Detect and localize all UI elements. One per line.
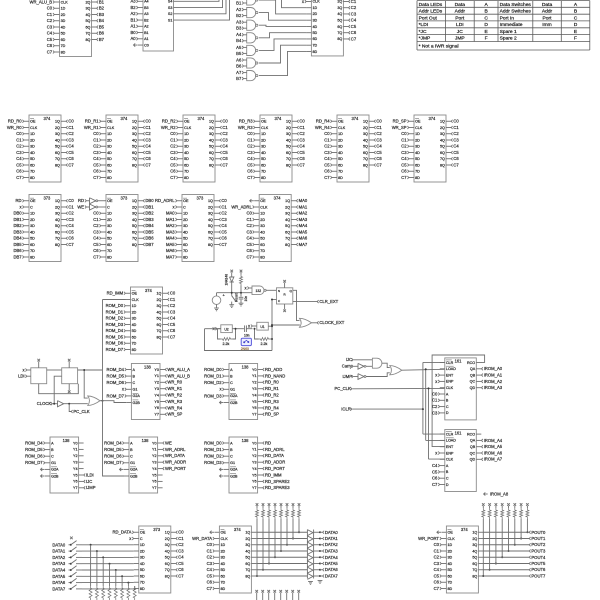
svg-text:ROM_D3: ROM_D3 — [106, 322, 124, 327]
svg-text:373: 373 — [196, 196, 204, 201]
svg-text:4D: 4D — [448, 562, 453, 566]
svg-text:8D: 8D — [183, 255, 188, 259]
svg-text:ROM_D4: ROM_D4 — [25, 440, 43, 445]
svg-text:DATA5: DATA5 — [52, 574, 66, 579]
svg-text:3D: 3D — [140, 556, 145, 560]
svg-text:LOAD: LOAD — [446, 439, 456, 443]
svg-text:C2: C2 — [351, 5, 357, 10]
svg-text:1D: 1D — [30, 132, 35, 136]
svg-text:C2: C2 — [401, 144, 407, 149]
svg-text:C5: C5 — [221, 229, 227, 234]
svg-text:C6: C6 — [47, 43, 53, 48]
svg-text:Y4: Y4 — [154, 393, 159, 397]
svg-text:C3: C3 — [47, 24, 53, 29]
svg-text:G1: G1 — [133, 388, 138, 392]
svg-text:C3: C3 — [299, 137, 305, 142]
svg-text:Y7: Y7 — [154, 413, 159, 417]
svg-text:7Q: 7Q — [55, 157, 60, 161]
svg-text:374: 374 — [428, 116, 436, 121]
svg-text:C1: C1 — [170, 137, 176, 142]
svg-text:C6: C6 — [324, 169, 330, 174]
svg-text:D: D — [484, 22, 488, 28]
svg-text:C5: C5 — [68, 229, 74, 234]
svg-text:G2B: G2B — [230, 401, 238, 405]
svg-text:OE: OE — [261, 120, 267, 124]
svg-text:DATA2: DATA2 — [325, 542, 339, 547]
svg-text:OE: OE — [221, 531, 227, 535]
svg-text:5D: 5D — [140, 568, 145, 572]
svg-text:WR_R2: WR_R2 — [167, 393, 182, 398]
svg-text:3Q: 3Q — [55, 212, 60, 216]
svg-text:CLK: CLK — [448, 537, 456, 541]
svg-text:C6: C6 — [432, 476, 438, 481]
svg-text:ROM_D0: ROM_D0 — [106, 303, 124, 308]
svg-text:8D: 8D — [415, 176, 420, 180]
svg-text:DB1: DB1 — [145, 204, 154, 209]
svg-text:3Q: 3Q — [440, 132, 445, 136]
svg-text:2D: 2D — [107, 138, 112, 142]
svg-text:IROM_A5: IROM_A5 — [484, 444, 503, 449]
svg-text:MA4: MA4 — [166, 236, 175, 241]
svg-text:B7: B7 — [99, 37, 105, 42]
svg-text:8D: 8D — [448, 587, 453, 591]
svg-text:G2B: G2B — [130, 474, 138, 478]
svg-text:373: 373 — [120, 196, 128, 201]
svg-text:C3: C3 — [434, 561, 440, 566]
svg-text:8Q: 8Q — [285, 243, 290, 247]
svg-text:1D: 1D — [107, 212, 112, 216]
svg-text:QA: QA — [470, 367, 476, 371]
svg-text:C0: C0 — [246, 211, 252, 216]
svg-text:Y1: Y1 — [252, 374, 257, 378]
svg-text:C0: C0 — [68, 198, 74, 203]
svg-text:6Q: 6Q — [132, 230, 137, 234]
svg-text:C0: C0 — [145, 119, 151, 124]
svg-text:C6: C6 — [68, 156, 74, 161]
svg-text:C2: C2 — [434, 555, 440, 560]
svg-text:6D: 6D — [61, 38, 66, 42]
svg-text:C5: C5 — [376, 150, 382, 155]
svg-text:5Q: 5Q — [363, 145, 368, 149]
svg-text:5D: 5D — [183, 237, 188, 241]
svg-text:WR_R3: WR_R3 — [167, 399, 182, 404]
svg-text:4D: 4D — [261, 151, 266, 155]
svg-text:OE: OE — [140, 531, 146, 535]
svg-text:4Q: 4Q — [165, 549, 170, 553]
svg-text:8D: 8D — [61, 50, 66, 54]
svg-text:7Q: 7Q — [165, 568, 170, 572]
svg-text:C1: C1 — [376, 125, 382, 130]
svg-text:373: 373 — [43, 196, 51, 201]
svg-text:RD: RD — [16, 198, 22, 203]
svg-text:DB5: DB5 — [13, 242, 22, 247]
svg-text:G1: G1 — [51, 461, 56, 465]
svg-text:!JC: !JC — [346, 357, 352, 362]
svg-text:4Q: 4Q — [363, 138, 368, 142]
svg-text:2D: 2D — [448, 549, 453, 553]
svg-text:C3: C3 — [170, 150, 176, 155]
svg-text:C5: C5 — [170, 322, 176, 327]
svg-text:C0: C0 — [16, 131, 22, 136]
svg-text:B4: B4 — [236, 38, 242, 43]
svg-text:A3: A3 — [130, 0, 136, 4]
svg-text:6Q: 6Q — [363, 151, 368, 155]
svg-text:2Q: 2Q — [156, 298, 161, 302]
svg-text:3Q: 3Q — [472, 543, 477, 547]
svg-text:2D: 2D — [132, 310, 137, 314]
svg-text:374: 374 — [145, 288, 153, 293]
svg-text:1D: 1D — [140, 543, 145, 547]
svg-text:S1: S1 — [168, 18, 173, 22]
svg-text:B1: B1 — [144, 31, 149, 35]
svg-text:WR_R3: WR_R3 — [238, 125, 253, 130]
svg-text:7D: 7D — [415, 170, 420, 174]
svg-text:RD_R1: RD_R1 — [85, 119, 99, 124]
svg-text:C0: C0 — [401, 131, 407, 136]
svg-text:1Q: 1Q — [165, 531, 170, 535]
svg-text:7Q: 7Q — [472, 568, 477, 572]
svg-text:QA: QA — [470, 439, 476, 443]
svg-text:2D: 2D — [221, 549, 226, 553]
svg-text:RD_SPARE2: RD_SPARE2 — [265, 479, 290, 484]
svg-text:Y2: Y2 — [154, 381, 159, 385]
svg-text:1Q: 1Q — [245, 531, 250, 535]
svg-text:ROM_D4: ROM_D4 — [106, 328, 124, 333]
svg-text:4D: 4D — [313, 25, 318, 29]
svg-text:4D: 4D — [338, 151, 343, 155]
svg-text:Y4: Y4 — [252, 393, 257, 397]
svg-text:C0: C0 — [68, 119, 74, 124]
svg-text:8Q: 8Q — [472, 574, 477, 578]
svg-text:QC: QC — [470, 451, 476, 455]
svg-text:1Q: 1Q — [55, 199, 60, 203]
svg-text:1N4148: 1N4148 — [225, 274, 229, 286]
svg-text:RD_IMM: RD_IMM — [107, 291, 124, 296]
svg-text:4D: 4D — [415, 151, 420, 155]
svg-text:CLK: CLK — [261, 126, 269, 130]
svg-text:6D: 6D — [338, 163, 343, 167]
svg-text:C7: C7 — [324, 175, 330, 180]
svg-text:DATA4: DATA4 — [325, 555, 339, 560]
svg-text:DATA2: DATA2 — [52, 555, 66, 560]
svg-text:C6: C6 — [299, 156, 305, 161]
svg-text:161: 161 — [455, 430, 463, 435]
svg-text:8D: 8D — [313, 50, 318, 54]
svg-text:6D: 6D — [221, 574, 226, 578]
svg-text:C7: C7 — [453, 162, 459, 167]
svg-text:C2: C2 — [246, 223, 252, 228]
svg-text:C7: C7 — [68, 162, 74, 167]
svg-text:C2: C2 — [324, 144, 330, 149]
svg-text:4Q: 4Q — [156, 310, 161, 314]
svg-text:C7: C7 — [401, 175, 407, 180]
svg-text:CLK: CLK — [415, 126, 423, 130]
svg-text:8Q: 8Q — [55, 243, 60, 247]
svg-text:4Q: 4Q — [440, 138, 445, 142]
svg-text:Port: Port — [455, 15, 465, 21]
svg-text:WR_ADDR: WR_ADDR — [165, 460, 186, 465]
svg-text:6D: 6D — [107, 163, 112, 167]
svg-text:WR_R4: WR_R4 — [167, 405, 182, 410]
svg-text:WR_ADRL: WR_ADRL — [231, 204, 252, 209]
svg-text:CLK: CLK — [446, 386, 454, 390]
svg-text:C3: C3 — [93, 150, 99, 155]
svg-text:132: 132 — [255, 289, 261, 293]
svg-text:C5: C5 — [299, 150, 305, 155]
svg-text:5Q: 5Q — [165, 556, 170, 560]
svg-text:C1: C1 — [16, 137, 22, 142]
svg-text:6D: 6D — [132, 335, 137, 339]
svg-text:ROM_D7: ROM_D7 — [104, 460, 122, 465]
svg-text:QD: QD — [470, 458, 476, 462]
svg-text:Spare 2: Spare 2 — [500, 36, 517, 42]
svg-text:DB4: DB4 — [13, 236, 22, 241]
svg-text:RD_R2: RD_R2 — [162, 119, 176, 124]
svg-text:Y3: Y3 — [73, 461, 78, 465]
svg-text:5D: 5D — [261, 157, 266, 161]
svg-text:B3: B3 — [99, 12, 105, 17]
svg-text:A5: A5 — [236, 45, 242, 50]
svg-text:C4: C4 — [145, 144, 151, 149]
svg-text:WE: WE — [77, 204, 84, 209]
svg-text:CLR: CLR — [446, 432, 454, 436]
svg-text:Y7: Y7 — [252, 413, 257, 417]
svg-text:C7: C7 — [432, 482, 438, 487]
svg-text:C7: C7 — [247, 175, 253, 180]
svg-text:4Q: 4Q — [209, 138, 214, 142]
svg-text:Port: Port — [543, 15, 553, 21]
svg-text:MA2: MA2 — [166, 223, 175, 228]
svg-text:ROM_D7: ROM_D7 — [107, 393, 125, 398]
svg-text:DATA1: DATA1 — [325, 536, 339, 541]
svg-text:1D: 1D — [415, 132, 420, 136]
svg-text:6Q: 6Q — [285, 230, 290, 234]
svg-text:D: D — [574, 22, 578, 28]
svg-text:2Q: 2Q — [472, 537, 477, 541]
svg-text:CLK: CLK — [221, 537, 229, 541]
svg-text:1Q: 1Q — [132, 120, 137, 124]
svg-text:7D: 7D — [30, 170, 35, 174]
svg-text:C4: C4 — [376, 144, 382, 149]
svg-text:2D: 2D — [261, 138, 266, 142]
svg-text:7D: 7D — [338, 170, 343, 174]
svg-text:2Q: 2Q — [165, 537, 170, 541]
svg-text:138: 138 — [242, 438, 250, 443]
svg-text:C6: C6 — [170, 169, 176, 174]
svg-text:OE: OE — [107, 120, 113, 124]
svg-text:C0: C0 — [247, 131, 253, 136]
svg-text:8D: 8D — [140, 587, 145, 591]
svg-text:QD: QD — [470, 386, 476, 390]
svg-text:C5: C5 — [247, 162, 253, 167]
svg-text:MA0: MA0 — [299, 198, 308, 203]
svg-text:8D: 8D — [221, 587, 226, 591]
svg-text:CLK: CLK — [184, 126, 192, 130]
svg-text:4Q: 4Q — [286, 138, 291, 142]
svg-text:Y1: Y1 — [152, 448, 157, 452]
svg-text:RD_SPARE3: RD_SPARE3 — [265, 485, 290, 490]
svg-text:DB6: DB6 — [145, 236, 154, 241]
svg-text:POUT0: POUT0 — [531, 530, 546, 535]
svg-text:WR_R2: WR_R2 — [161, 125, 176, 130]
svg-text:C7: C7 — [47, 49, 53, 54]
svg-text:C0: C0 — [299, 119, 305, 124]
svg-text:5Q: 5Q — [245, 556, 250, 560]
svg-text:C6: C6 — [222, 156, 228, 161]
svg-text:WE: WE — [165, 440, 172, 445]
svg-text:C: C — [574, 15, 578, 21]
svg-text:C7: C7 — [434, 586, 440, 591]
svg-text:6Q: 6Q — [472, 562, 477, 566]
svg-text:B2: B2 — [130, 5, 136, 10]
svg-text:DATA7: DATA7 — [52, 586, 66, 591]
svg-text:C6: C6 — [351, 30, 357, 35]
svg-text:3Q: 3Q — [132, 212, 137, 216]
svg-text:RD_DATA: RD_DATA — [112, 530, 131, 535]
svg-text:POUT6: POUT6 — [531, 567, 546, 572]
svg-text:4D: 4D — [132, 323, 137, 327]
svg-text:A3: A3 — [236, 20, 242, 25]
svg-text:8Q: 8Q — [55, 163, 60, 167]
svg-text:8Q: 8Q — [208, 243, 213, 247]
svg-text:3D: 3D — [132, 317, 137, 321]
svg-text:C4: C4 — [16, 156, 22, 161]
svg-text:Y3: Y3 — [252, 387, 257, 391]
svg-text:C6: C6 — [170, 328, 176, 333]
svg-text:6Q: 6Q — [208, 230, 213, 234]
svg-text:DATA5: DATA5 — [325, 561, 339, 566]
svg-text:C: C — [230, 381, 233, 385]
svg-text:MA5: MA5 — [166, 242, 175, 247]
svg-text:C3: C3 — [170, 309, 176, 314]
svg-text:MA3: MA3 — [299, 217, 308, 222]
svg-text:4D: 4D — [30, 151, 35, 155]
svg-text:POUT2: POUT2 — [531, 542, 546, 547]
svg-text:2D: 2D — [338, 138, 343, 142]
svg-text:G2B: G2B — [51, 474, 59, 478]
svg-text:C7: C7 — [170, 334, 176, 339]
svg-text:RD: RD — [78, 198, 84, 203]
svg-text:C1: C1 — [93, 137, 99, 142]
svg-text:1D: 1D — [61, 7, 66, 11]
svg-text:A4: A4 — [144, 0, 149, 4]
svg-text:S: S — [278, 289, 280, 293]
svg-text:C2: C2 — [145, 131, 151, 136]
svg-text:C1: C1 — [145, 125, 151, 130]
svg-text:G1: G1 — [230, 461, 235, 465]
svg-text:WR_ALU_A: WR_ALU_A — [167, 367, 190, 372]
svg-text:C1: C1 — [207, 548, 213, 553]
svg-text:OE: OE — [338, 120, 344, 124]
svg-text:374: 374 — [234, 527, 242, 532]
svg-text:1Q: 1Q — [55, 120, 60, 124]
svg-text:DATA3: DATA3 — [325, 549, 339, 554]
svg-text:ROM_D0: ROM_D0 — [204, 367, 222, 372]
svg-text:OE: OE — [184, 120, 190, 124]
svg-text:C: C — [107, 205, 110, 209]
svg-text:RD_R3: RD_R3 — [265, 399, 279, 404]
svg-text:C6: C6 — [247, 169, 253, 174]
svg-text:7Q: 7Q — [156, 329, 161, 333]
svg-text:5Q: 5Q — [286, 145, 291, 149]
svg-text:5D: 5D — [448, 568, 453, 572]
svg-text:7Q: 7Q — [209, 157, 214, 161]
svg-text:C2: C2 — [68, 211, 74, 216]
svg-text:A2: A2 — [236, 7, 242, 12]
svg-text:C5: C5 — [93, 162, 99, 167]
svg-text:1Q: 1Q — [363, 120, 368, 124]
svg-text:OE: OE — [30, 199, 36, 203]
svg-text:C1: C1 — [401, 137, 407, 142]
svg-text:C6: C6 — [93, 248, 99, 253]
svg-text:C7: C7 — [246, 254, 252, 259]
svg-text:C1: C1 — [222, 125, 228, 130]
svg-text:ROM_D2: ROM_D2 — [204, 454, 222, 459]
svg-text:C6: C6 — [93, 169, 99, 174]
svg-text:C4: C4 — [47, 31, 53, 36]
svg-text:B1: B1 — [236, 0, 242, 5]
svg-text:C2: C2 — [68, 131, 74, 136]
svg-text:6Q: 6Q — [85, 25, 90, 29]
svg-text:3D: 3D — [184, 145, 189, 149]
svg-text:2Q: 2Q — [363, 126, 368, 130]
svg-text:MA6: MA6 — [299, 236, 308, 241]
svg-text:!JMP: !JMP — [86, 485, 96, 490]
svg-text:C: C — [133, 381, 136, 385]
svg-text:C0: C0 — [93, 131, 99, 136]
svg-text:5D: 5D — [338, 157, 343, 161]
svg-text:*LDI: *LDI — [419, 22, 429, 28]
svg-text:IROM_A8: IROM_A8 — [490, 491, 509, 496]
svg-text:7Q: 7Q — [208, 237, 213, 241]
svg-text:C3: C3 — [16, 150, 22, 155]
svg-text:WR_ADRL: WR_ADRL — [165, 447, 186, 452]
svg-text:Addr: Addr — [455, 9, 466, 15]
svg-text:3Q: 3Q — [245, 543, 250, 547]
svg-text:6D: 6D — [260, 243, 265, 247]
svg-text:2D: 2D — [184, 138, 189, 142]
svg-text:C6: C6 — [246, 248, 252, 253]
svg-text:3D: 3D — [107, 145, 112, 149]
svg-text:C5: C5 — [432, 469, 438, 474]
svg-text:C: C — [484, 15, 488, 21]
svg-text:IROM_A3: IROM_A3 — [484, 385, 503, 390]
svg-text:DB2: DB2 — [13, 223, 22, 228]
svg-text:2Q: 2Q — [286, 126, 291, 130]
svg-text:LDI: LDI — [456, 22, 464, 28]
svg-text:3Q: 3Q — [209, 132, 214, 136]
svg-text:374: 374 — [274, 196, 282, 201]
svg-text:POUT5: POUT5 — [531, 561, 546, 566]
svg-text:2D: 2D — [415, 138, 420, 142]
svg-text:WR_R4: WR_R4 — [315, 125, 330, 130]
svg-text:C0: C0 — [178, 530, 184, 535]
svg-text:CLK: CLK — [107, 126, 115, 130]
svg-text:4Q: 4Q — [472, 549, 477, 553]
svg-text:7Q: 7Q — [85, 32, 90, 36]
svg-text:Y6: Y6 — [152, 480, 157, 484]
svg-text:JC: JC — [457, 29, 463, 35]
svg-text:2Q: 2Q — [285, 205, 290, 209]
svg-text:6Q: 6Q — [209, 151, 214, 155]
svg-text:5Q: 5Q — [208, 224, 213, 228]
svg-text:374: 374 — [43, 116, 51, 121]
svg-text:A6: A6 — [236, 57, 242, 62]
svg-text:7Q: 7Q — [440, 157, 445, 161]
svg-text:Y3: Y3 — [154, 387, 159, 391]
svg-text:B1: B1 — [130, 17, 136, 22]
svg-text:138: 138 — [242, 365, 250, 370]
